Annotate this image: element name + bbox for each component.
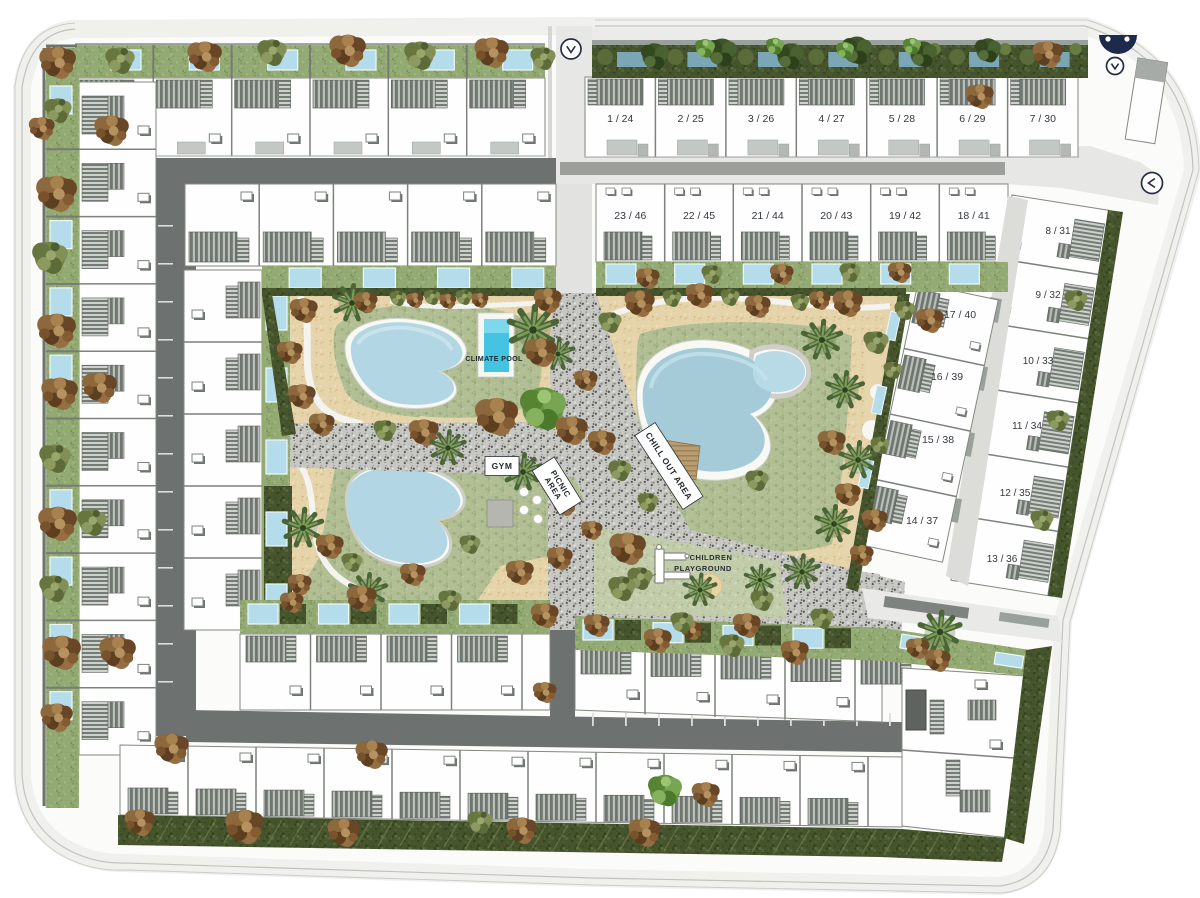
svg-text:13 / 36: 13 / 36 xyxy=(987,554,1018,565)
svg-text:GYM: GYM xyxy=(492,461,513,471)
svg-text:15 / 38: 15 / 38 xyxy=(922,434,954,446)
svg-text:3 / 26: 3 / 26 xyxy=(748,113,774,125)
svg-text:CHILDREN: CHILDREN xyxy=(690,553,733,562)
svg-text:17 / 40: 17 / 40 xyxy=(944,309,976,321)
svg-text:18 / 41: 18 / 41 xyxy=(958,210,990,222)
svg-text:23 / 46: 23 / 46 xyxy=(614,210,646,222)
svg-text:19 / 42: 19 / 42 xyxy=(889,210,921,222)
svg-text:CLIMATE POOL: CLIMATE POOL xyxy=(465,354,523,363)
svg-text:1 / 24: 1 / 24 xyxy=(607,113,633,125)
svg-text:6 / 29: 6 / 29 xyxy=(959,113,985,125)
svg-text:22 / 45: 22 / 45 xyxy=(683,210,715,222)
svg-text:4 / 27: 4 / 27 xyxy=(818,113,844,125)
svg-text:16 / 39: 16 / 39 xyxy=(931,371,963,383)
svg-text:5 / 28: 5 / 28 xyxy=(889,113,915,125)
svg-text:11 / 34: 11 / 34 xyxy=(1012,421,1042,432)
svg-text:21 / 44: 21 / 44 xyxy=(752,210,784,222)
svg-text:7 / 30: 7 / 30 xyxy=(1030,113,1056,125)
svg-text:9 / 32: 9 / 32 xyxy=(1035,290,1060,301)
svg-text:8 / 31: 8 / 31 xyxy=(1045,226,1070,237)
svg-text:PLAYGROUND: PLAYGROUND xyxy=(674,564,732,573)
svg-text:10 / 33: 10 / 33 xyxy=(1023,356,1054,367)
svg-text:20 / 43: 20 / 43 xyxy=(820,210,852,222)
svg-text:14 / 37: 14 / 37 xyxy=(906,515,938,527)
svg-text:2 / 25: 2 / 25 xyxy=(678,113,704,125)
svg-text:12 / 35: 12 / 35 xyxy=(1000,488,1031,499)
